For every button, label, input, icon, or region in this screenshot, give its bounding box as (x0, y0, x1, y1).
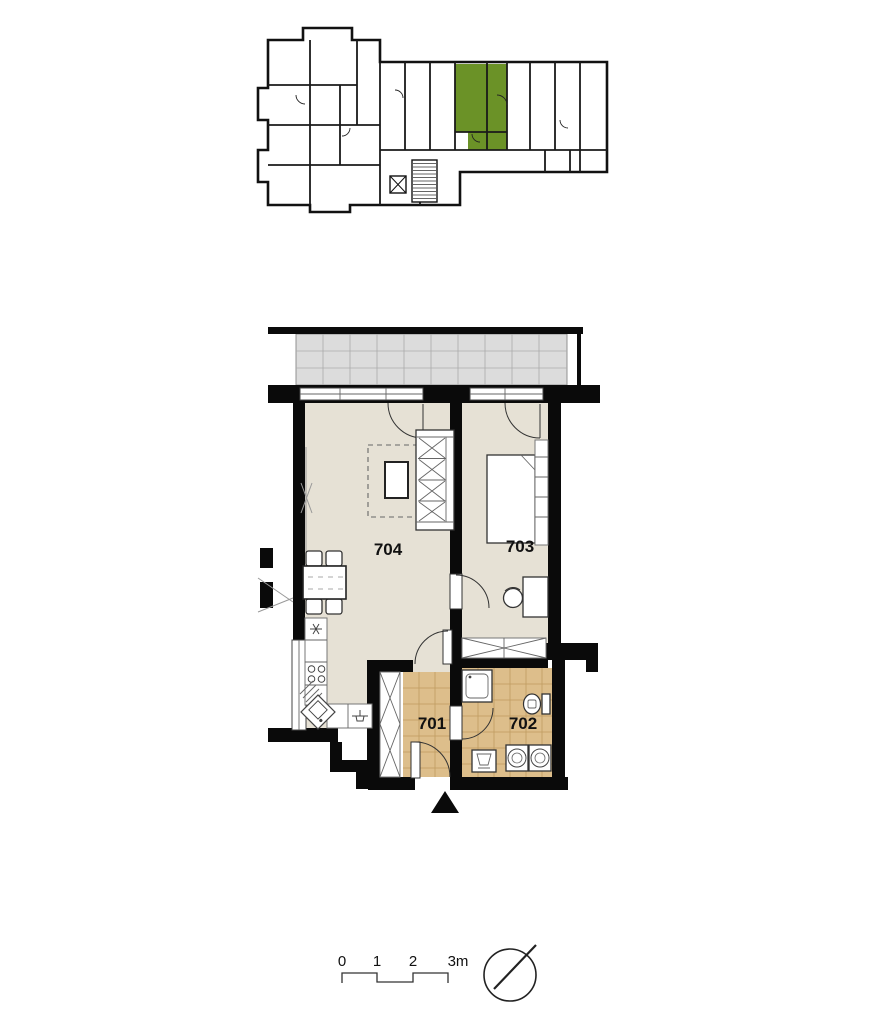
floor-plan-page: 704 703 701 702 0 1 2 3m (0, 0, 870, 1024)
compass-needle-icon (484, 945, 536, 1001)
balcony-window-703 (470, 388, 543, 400)
room-701-furniture (380, 672, 400, 777)
room-label-704: 704 (374, 540, 403, 559)
scale-label-2: 2 (409, 953, 417, 970)
coffee-table (385, 462, 408, 498)
desk-chair (504, 588, 523, 608)
scale-bar-line (342, 973, 448, 983)
kitchen-window (292, 640, 306, 730)
floor-plan-canvas: 704 703 701 702 0 1 2 3m (0, 0, 870, 1024)
elevator (390, 176, 406, 193)
building-overview (258, 28, 607, 212)
entrance-triangle-icon (431, 791, 459, 813)
sofa (416, 430, 454, 530)
hall-wardrobe (380, 672, 400, 777)
scale-bar: 0 1 2 3m (338, 953, 469, 983)
room-label-703: 703 (506, 537, 534, 556)
desk (523, 577, 548, 617)
balcony-deck (296, 334, 567, 385)
scale-label-3m: 3m (448, 953, 469, 970)
washing-machine (506, 745, 528, 771)
bedside-shelves (535, 440, 548, 545)
toilet (524, 694, 551, 714)
stairwell (412, 160, 437, 202)
bathroom-sink (472, 750, 496, 772)
scale-label-0: 0 (338, 953, 346, 970)
bed (487, 455, 535, 543)
room-label-701: 701 (418, 714, 446, 733)
dryer (529, 745, 551, 771)
scale-label-1: 1 (373, 953, 381, 970)
balcony-edge-wall (268, 327, 583, 334)
wardrobe-703 (462, 638, 546, 658)
balcony (268, 327, 583, 385)
shower (462, 670, 492, 702)
room-label-702: 702 (509, 714, 537, 733)
balcony-side-wall (577, 334, 581, 385)
balcony-window-704 (300, 388, 423, 400)
apartment-plan: 704 703 701 702 (258, 327, 600, 813)
